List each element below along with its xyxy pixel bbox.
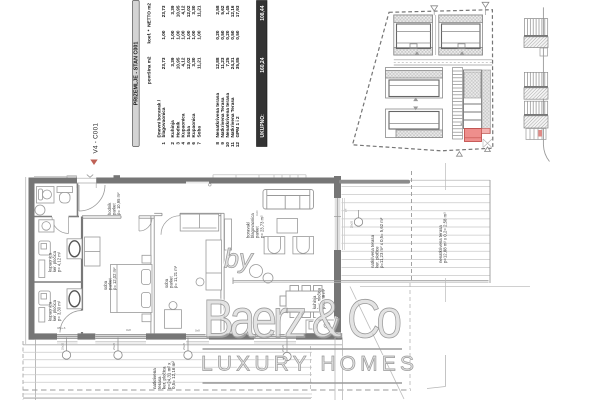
svg-text:0x00: 0x00: [255, 210, 259, 216]
svg-text:Kuhinja: Kuhinja: [170, 120, 175, 138]
svg-text:5: 5: [186, 142, 191, 145]
svg-text:10,95: 10,95: [175, 5, 180, 17]
svg-text:23,73: 23,73: [161, 5, 166, 17]
svg-text:3: 3: [175, 142, 180, 145]
svg-text:GPM 1 i 2: GPM 1 i 2: [235, 116, 240, 137]
svg-text:3,30: 3,30: [191, 57, 196, 67]
svg-text:12: 12: [235, 142, 240, 148]
svg-text:11,21: 11,21: [197, 5, 202, 17]
svg-text:nenatkrivena terasap=12,88 m²: nenatkrivena terasap=12,88 m² x 0,2= 2,5…: [438, 212, 448, 263]
svg-text:6: 6: [191, 142, 196, 145]
svg-text:0x8: 0x8: [126, 328, 131, 332]
svg-text:4,12: 4,12: [181, 57, 186, 67]
svg-text:4: 4: [181, 142, 186, 145]
svg-text:1: 1: [161, 142, 166, 145]
svg-text:3,30: 3,30: [191, 5, 196, 15]
svg-text:12,02: 12,02: [186, 5, 191, 17]
svg-text:Baerz & Co: Baerz & Co: [203, 288, 402, 350]
svg-text:08p+6: 08p+6: [57, 326, 66, 330]
svg-text:2: 2: [170, 142, 175, 145]
svg-text:1,00: 1,00: [191, 30, 196, 40]
svg-text:4,12: 4,12: [181, 5, 186, 15]
svg-text:LUXURY HOMES: LUXURY HOMES: [201, 353, 414, 376]
svg-text:10,95: 10,95: [175, 57, 180, 69]
svg-text:sobaparketp= 11,21 m²: sobaparketp= 11,21 m²: [164, 265, 178, 288]
svg-text:kupaonicaker. pločicap= 4,12 m: kupaonicaker. pločicap= 4,12 m²: [48, 250, 62, 272]
svg-text:35,85: 35,85: [235, 57, 240, 69]
svg-text:Hodnik: Hodnik: [175, 121, 180, 137]
svg-text:koef. *: koef. *: [147, 29, 152, 43]
svg-text:7: 7: [197, 142, 202, 145]
svg-text:0,50: 0,50: [235, 30, 240, 40]
svg-text:1,00: 1,00: [186, 30, 191, 40]
svg-text:12,02: 12,02: [186, 57, 191, 69]
svg-text:Soba: Soba: [186, 126, 191, 138]
svg-text:Soba: Soba: [197, 126, 202, 138]
svg-text:11,21: 11,21: [197, 57, 202, 69]
svg-text:108,44: 108,44: [260, 5, 266, 21]
svg-text:1,00: 1,00: [181, 30, 186, 40]
svg-text:1,00: 1,00: [170, 30, 175, 40]
svg-text:prl: prl: [344, 208, 348, 212]
svg-text:natkrivena terasaker. pločicep: natkrivena terasaker. pločicep=11,23 m² …: [370, 217, 384, 268]
svg-text:PRIZEMLJE - STAN C001: PRIZEMLJE - STAN C001: [134, 42, 140, 106]
svg-text:23,73: 23,73: [161, 57, 166, 69]
svg-text:1,00: 1,00: [175, 30, 180, 40]
svg-text:natkrivenaterasaker. pločicap=: natkrivenaterasaker. pločicap=24,31 m² x…: [152, 361, 176, 389]
svg-text:blagovaonica: blagovaonica: [161, 107, 166, 137]
svg-text:površina m2: površina m2: [147, 56, 152, 84]
svg-text:25x25: 25x25: [61, 342, 65, 350]
svg-text:UKUPNO:: UKUPNO:: [260, 114, 266, 138]
svg-text:hodnikparketp= 10,95 m²: hodnikparketp= 10,95 m²: [107, 192, 121, 215]
svg-text:25x25: 25x25: [350, 220, 354, 228]
svg-text:V4 - C001: V4 - C001: [93, 123, 100, 154]
svg-text:Kupaonica: Kupaonica: [181, 113, 186, 137]
svg-text:boravak/blagovaonicaparketp= 2: boravak/blagovaonicaparketp= 23,73 m²: [246, 213, 265, 238]
svg-text:by: by: [224, 244, 254, 274]
svg-text:1,00: 1,00: [197, 30, 202, 40]
svg-text:17,93: 17,93: [235, 5, 240, 17]
svg-text:0x8: 0x8: [195, 328, 200, 332]
svg-text:25x25: 25x25: [112, 342, 116, 350]
svg-text:160,24: 160,24: [260, 57, 266, 73]
svg-text:25x25: 25x25: [182, 342, 186, 350]
svg-text:3,39: 3,39: [170, 5, 175, 15]
svg-text:NETTO m2: NETTO m2: [147, 3, 152, 27]
svg-text:1,00: 1,00: [161, 30, 166, 40]
svg-text:sobaparketp= 12,02 m²: sobaparketp= 12,02 m²: [103, 267, 117, 290]
svg-text:Kupaonica: Kupaonica: [191, 113, 196, 137]
svg-text:kupaonicaker. pločicap= 3,30 m: kupaonicaker. pločicap= 3,30 m²: [48, 299, 62, 321]
svg-text:3,39: 3,39: [170, 57, 175, 67]
